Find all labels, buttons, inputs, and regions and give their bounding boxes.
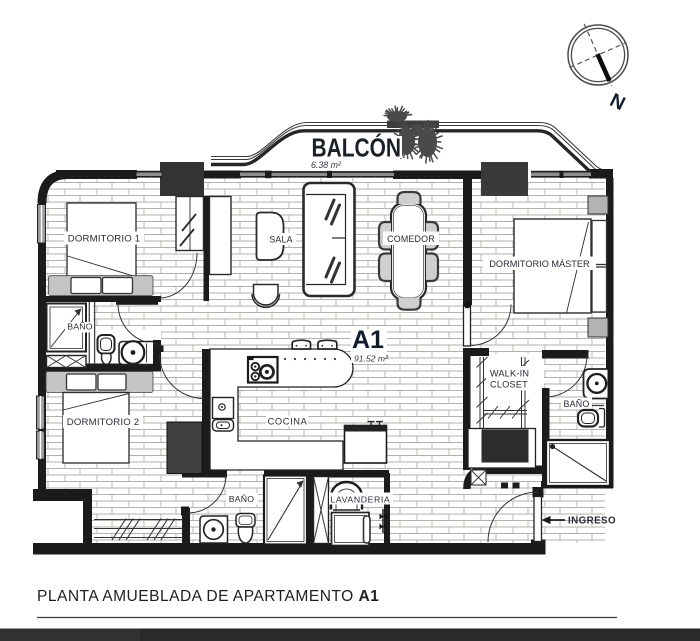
svg-text:91.52 m²: 91.52 m²	[354, 354, 389, 364]
svg-text:BAÑO: BAÑO	[564, 399, 590, 409]
svg-text:DORMITORIO 2: DORMITORIO 2	[67, 417, 140, 428]
svg-text:DORMITORIO 1: DORMITORIO 1	[68, 234, 141, 245]
svg-text:BAÑO: BAÑO	[67, 322, 92, 332]
svg-text:LAVANDERIA: LAVANDERIA	[331, 495, 391, 505]
svg-text:BALCÓN: BALCÓN	[312, 133, 402, 163]
svg-text:PLANTA AMUEBLADA DE APARTAMENT: PLANTA AMUEBLADA DE APARTAMENTO A1	[37, 588, 379, 605]
svg-text:INGRESO: INGRESO	[568, 516, 616, 527]
svg-text:BAÑO: BAÑO	[229, 494, 254, 504]
svg-text:SALA: SALA	[269, 234, 292, 244]
svg-text:6.38 m²: 6.38 m²	[311, 160, 342, 170]
svg-text:N: N	[606, 89, 628, 115]
svg-text:COCINA: COCINA	[268, 417, 308, 427]
svg-text:COMEDOR: COMEDOR	[387, 234, 435, 244]
svg-text:DORMITORIO MÁSTER: DORMITORIO MÁSTER	[489, 259, 590, 269]
svg-text:WALK-IN: WALK-IN	[490, 369, 529, 379]
svg-text:CLOSET: CLOSET	[490, 380, 528, 390]
svg-text:A1: A1	[352, 326, 384, 354]
